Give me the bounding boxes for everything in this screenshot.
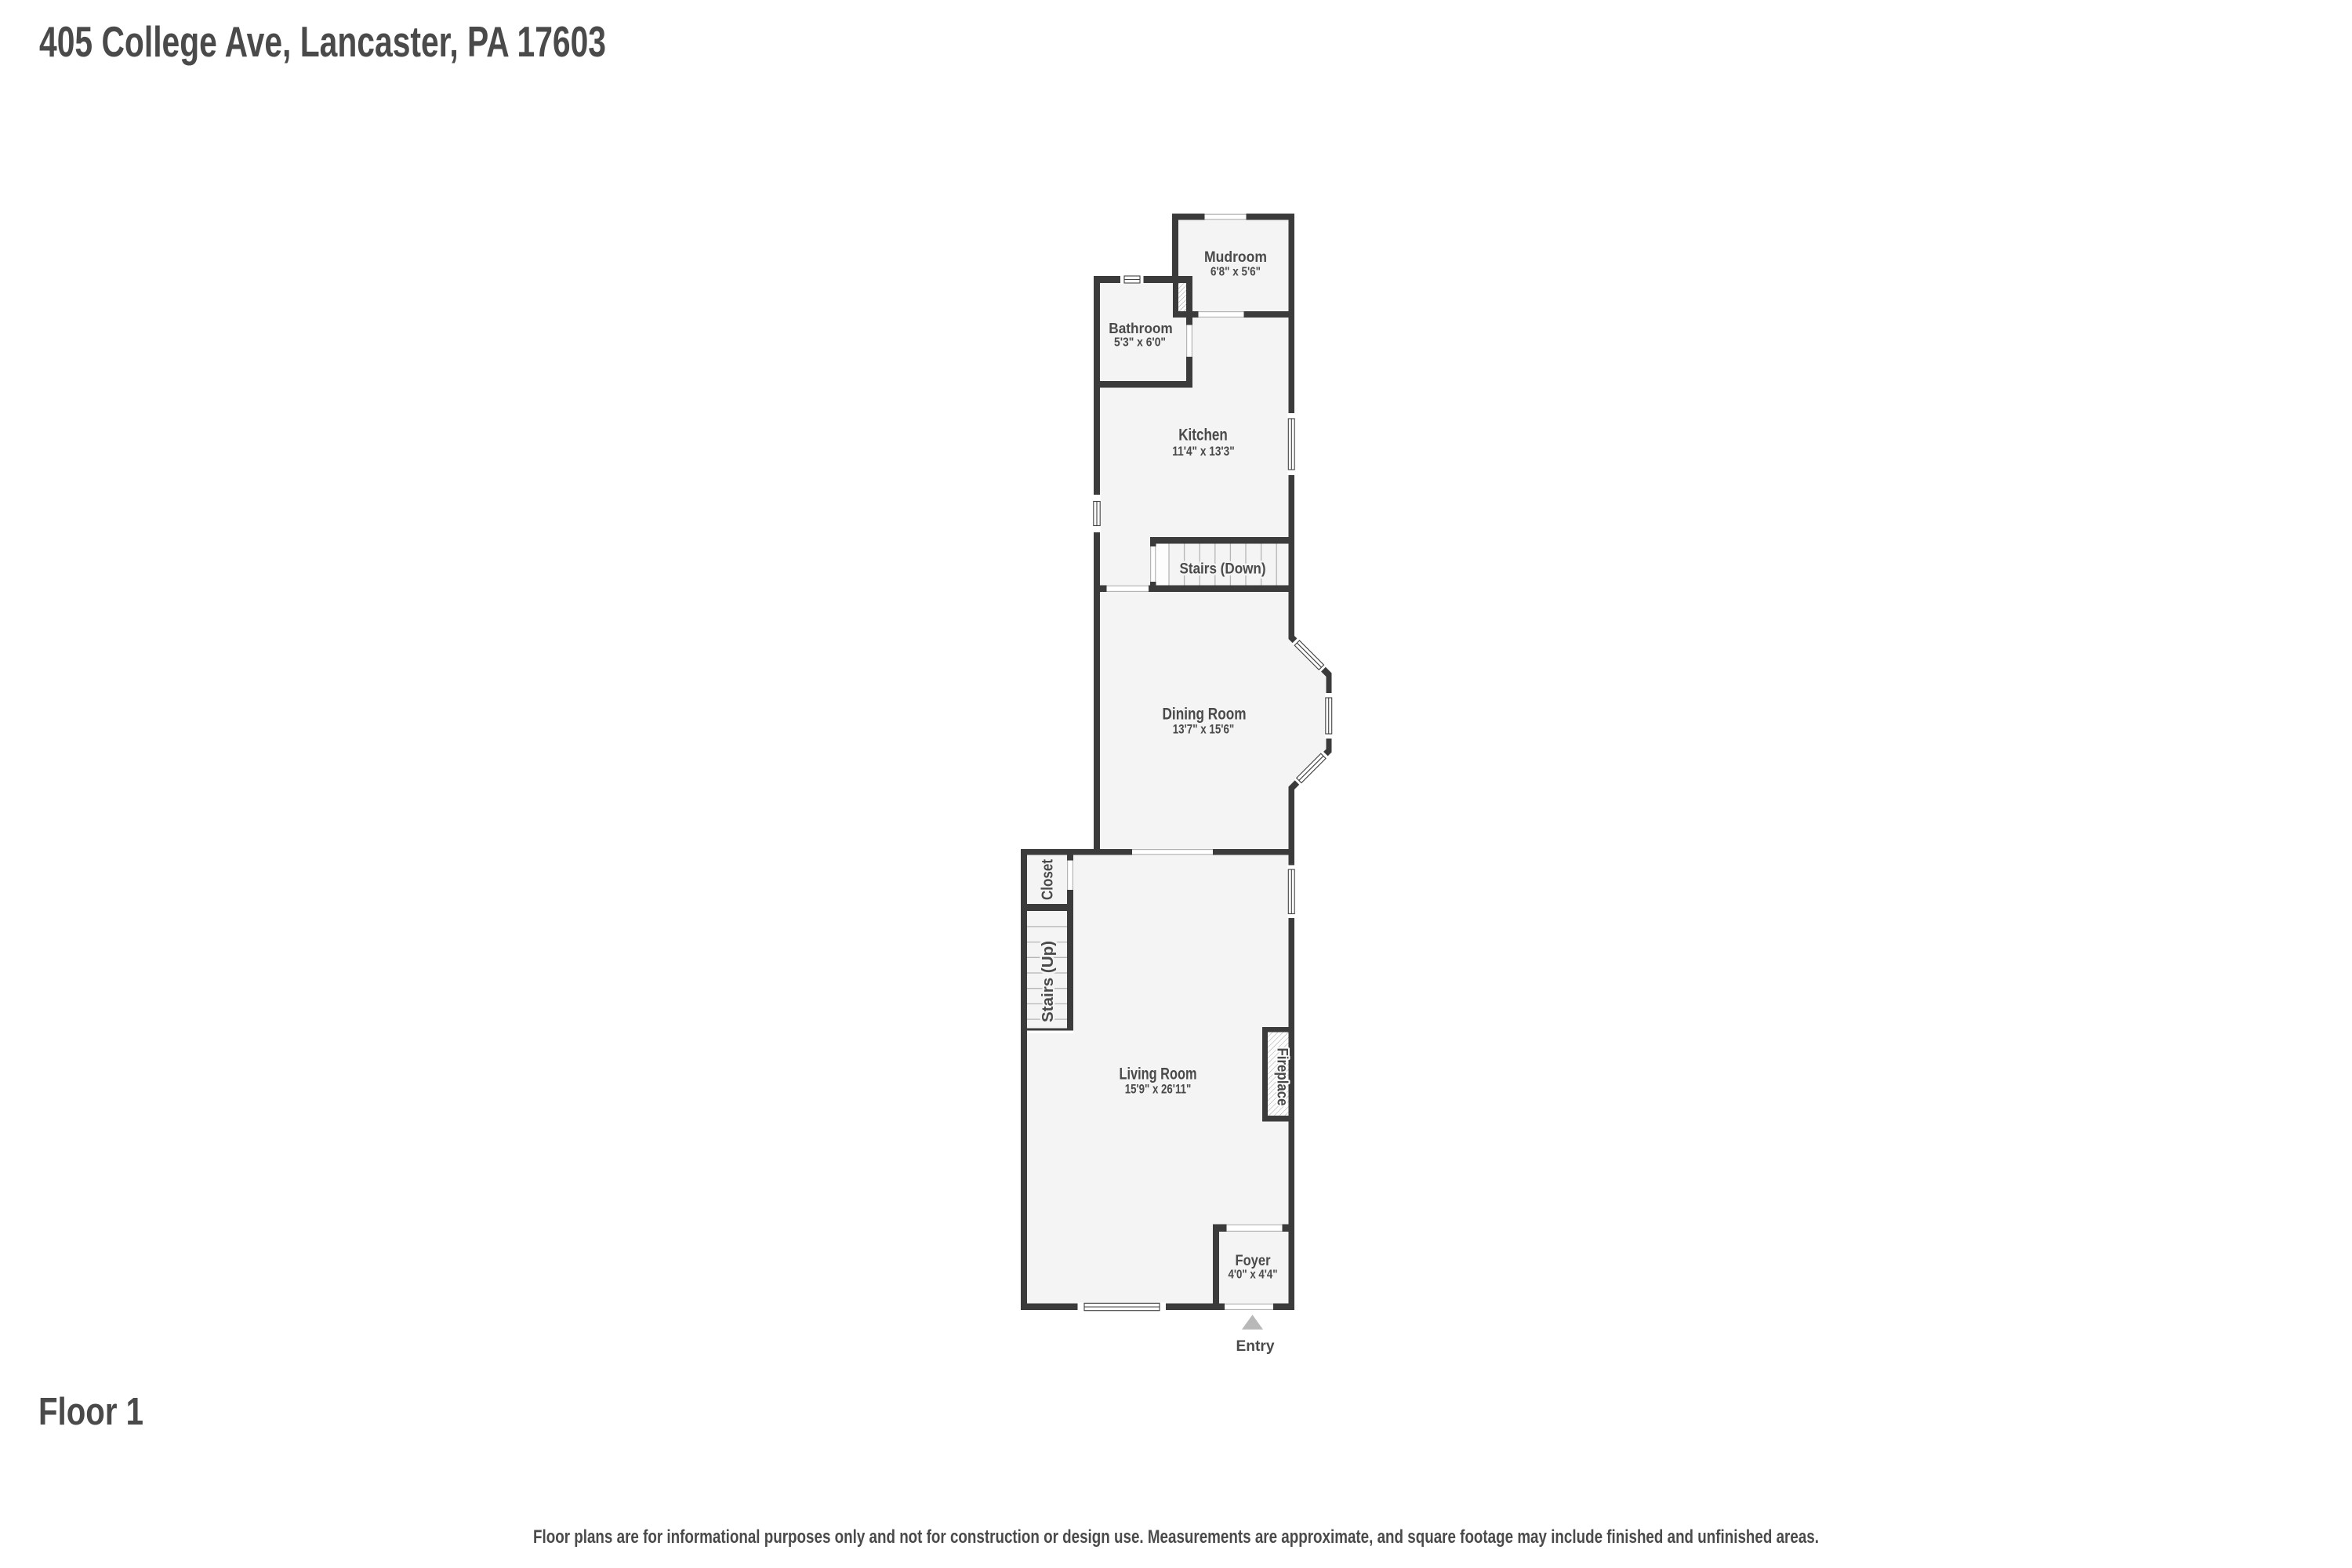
svg-text:Kitchen: Kitchen: [1178, 426, 1228, 445]
svg-text:Stairs (Up): Stairs (Up): [1040, 941, 1057, 1022]
svg-text:Mudroom: Mudroom: [1204, 249, 1267, 266]
svg-text:5'3" x 6'0": 5'3" x 6'0": [1114, 336, 1166, 350]
svg-text:Floor 1: Floor 1: [38, 1391, 143, 1433]
svg-text:Fireplace: Fireplace: [1274, 1048, 1290, 1106]
svg-text:405 College Ave, Lancaster, PA: 405 College Ave, Lancaster, PA 17603: [39, 17, 606, 66]
svg-text:Living Room: Living Room: [1120, 1065, 1197, 1083]
svg-text:13'7" x 15'6": 13'7" x 15'6": [1173, 722, 1235, 737]
svg-text:15'9" x 26'11": 15'9" x 26'11": [1125, 1082, 1192, 1097]
svg-text:6'8" x 5'6": 6'8" x 5'6": [1210, 266, 1261, 279]
svg-text:Bathroom: Bathroom: [1109, 321, 1173, 336]
svg-text:Foyer: Foyer: [1236, 1252, 1271, 1269]
svg-text:Stairs (Down): Stairs (Down): [1180, 561, 1266, 578]
svg-text:4'0" x 4'4": 4'0" x 4'4": [1229, 1269, 1278, 1282]
svg-text:Floor plans are for informatio: Floor plans are for informational purpos…: [533, 1526, 1819, 1548]
svg-text:Closet: Closet: [1040, 859, 1057, 900]
svg-text:11'4" x 13'3": 11'4" x 13'3": [1172, 444, 1235, 459]
svg-text:Dining Room: Dining Room: [1163, 706, 1247, 724]
svg-text:Entry: Entry: [1236, 1338, 1275, 1355]
